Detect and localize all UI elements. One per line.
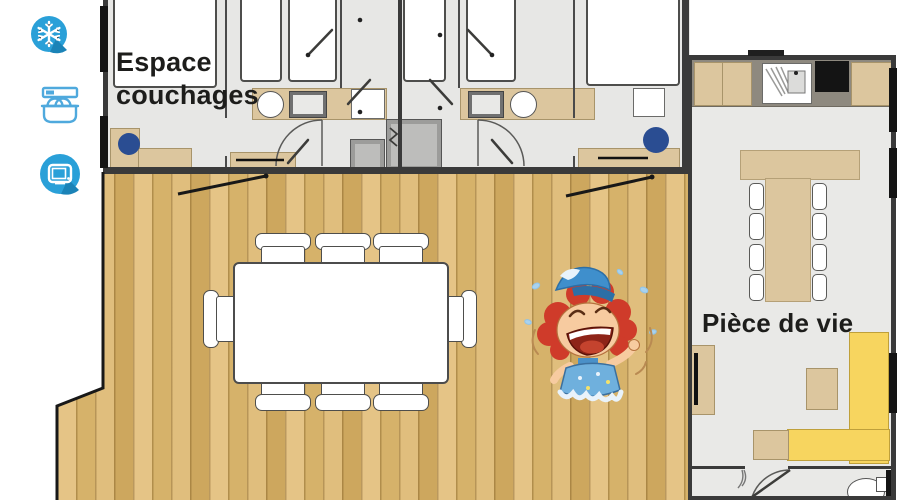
central-wall [398,0,402,170]
washbasin-icon [510,91,537,118]
dining-chair [255,394,311,411]
bathroom-cabinet [351,89,385,119]
partition-wall [458,0,460,88]
exterior-wall [103,167,690,174]
dining-table [233,262,449,384]
wc-wall [690,466,745,469]
tv-icon [694,353,698,405]
snowflake-icon [29,14,69,54]
stool [812,183,827,210]
dining-chair [373,394,429,411]
bedroom-cabinet [633,88,665,117]
sink-unit [468,91,504,118]
dishwasher-icon [36,82,84,130]
exterior-wall [690,496,896,500]
stool [749,244,764,271]
window-marker [889,148,897,198]
tv-icon [38,152,82,196]
bed-single [403,0,446,82]
coffee-table [806,368,838,410]
kitchen-cabinet [851,62,892,106]
side-table [753,430,789,460]
kitchen-cabinet [694,62,724,106]
desk-chair [643,127,669,153]
stool [812,274,827,301]
sleeping-area-label: Espace couchages [116,46,316,112]
wc-wall [788,466,891,469]
amenity-icon-rail [0,0,100,220]
window-marker [889,353,897,413]
stool [812,244,827,271]
sofa [787,429,890,461]
laughing-mascot-illustration [520,256,665,424]
bed-double [586,0,680,86]
partition-wall [340,0,342,88]
bed-single [466,0,516,82]
window-marker [889,68,897,132]
exterior-wall [688,55,692,500]
kitchen-sink [762,63,812,104]
exterior-wall [688,55,895,60]
dining-chair [315,394,371,411]
door-lintel [748,50,784,56]
cooktop [815,61,849,92]
floorplan-canvas: Espace couchages Pièce de vie [0,0,900,500]
stool [749,213,764,240]
stool [749,183,764,210]
desk-chair [118,133,140,155]
kitchen-cabinet [722,62,752,106]
island-table [740,150,860,180]
partition-wall [573,0,575,118]
window-marker [100,116,108,168]
window-marker [100,6,108,72]
stool [812,213,827,240]
living-area-label: Pièce de vie [702,308,853,340]
stool [749,274,764,301]
shower-stall [386,119,442,171]
island-table [765,178,811,302]
